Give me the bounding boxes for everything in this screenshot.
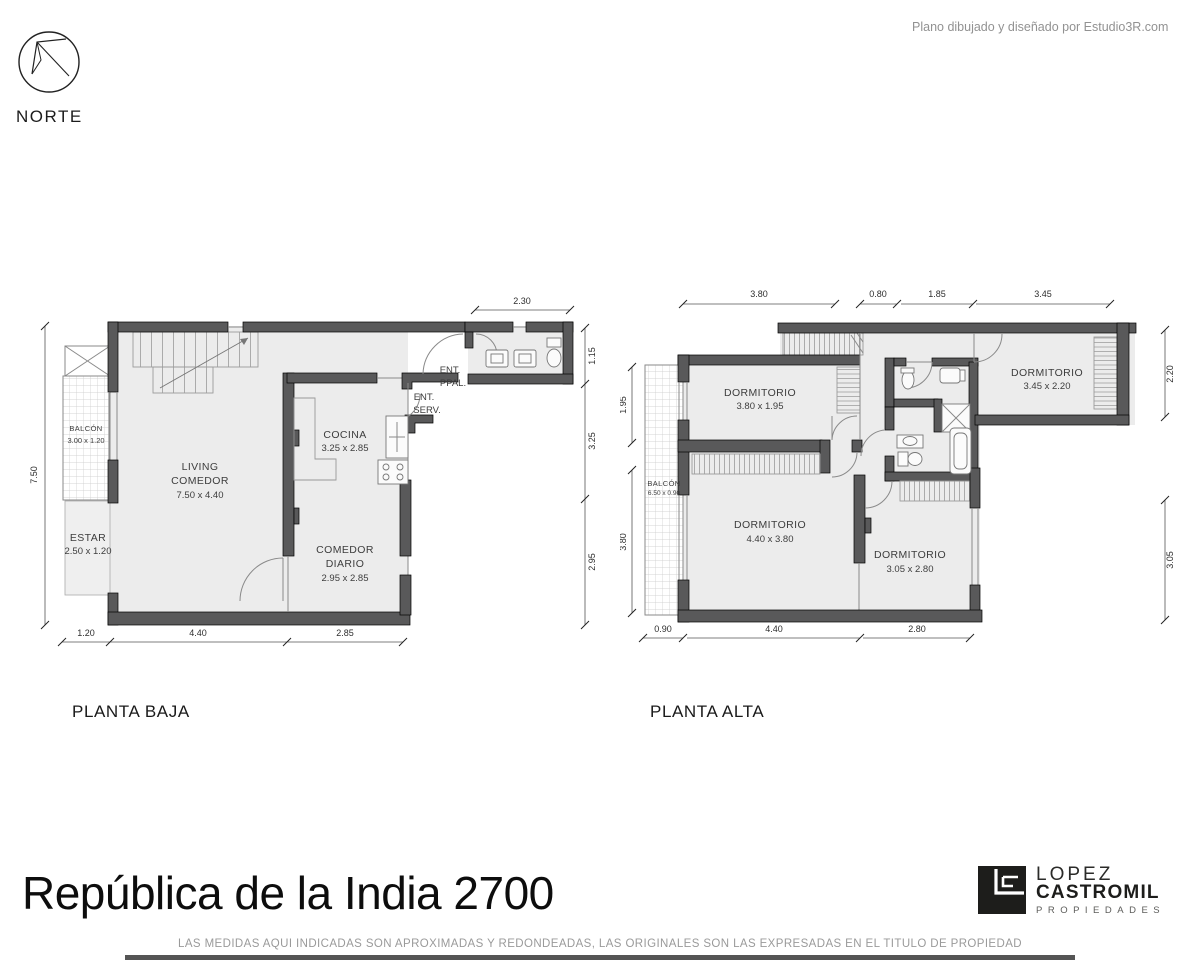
brand-text: LOPEZ CASTROMIL PROPIEDADES bbox=[1036, 866, 1165, 916]
north-compass-icon bbox=[14, 26, 86, 98]
stove-icon bbox=[378, 460, 408, 484]
room-dims-living: 7.50 x 4.40 bbox=[176, 490, 223, 501]
sink-icon bbox=[902, 371, 914, 389]
room-label-comedor-2: DIARIO bbox=[326, 558, 365, 570]
dim-pa-right1: 2.20 bbox=[1165, 365, 1175, 383]
brand-line3: PROPIEDADES bbox=[1036, 905, 1165, 916]
planta-baja-label: PLANTA BAJA bbox=[72, 702, 190, 722]
dim-pb-bottom2: 4.40 bbox=[189, 628, 207, 638]
dim-pa-bottom3: 2.80 bbox=[908, 624, 926, 634]
pa-closet-dorm4 bbox=[900, 481, 970, 501]
dim-pb-right3: 2.95 bbox=[587, 553, 597, 571]
room-label-dorm-este: DORMITORIO bbox=[1011, 367, 1083, 379]
brand-line2: CASTROMIL bbox=[1036, 883, 1165, 902]
toilet-icon bbox=[547, 338, 561, 347]
label-ent-ppal-2: PPAL. bbox=[440, 378, 466, 389]
room-label-estar: ESTAR bbox=[70, 532, 106, 544]
pa-closet-dorm2 bbox=[1094, 337, 1117, 409]
dim-pb-bottom1: 1.20 bbox=[77, 628, 95, 638]
lopez-castromil-logo: LOPEZ CASTROMIL PROPIEDADES bbox=[978, 866, 1165, 916]
dim-pa-top4: 3.45 bbox=[1034, 289, 1052, 299]
label-ent-serv-1: ENT. bbox=[414, 392, 435, 403]
room-dims-dorm-norte: 3.80 x 1.95 bbox=[736, 401, 783, 412]
pa-closet-dorm3 bbox=[692, 454, 820, 474]
room-label-dorm-norte: DORMITORIO bbox=[724, 387, 796, 399]
room-dims-dorm-sur: 3.05 x 2.80 bbox=[886, 564, 933, 575]
dim-pa-left2: 3.80 bbox=[620, 533, 628, 551]
page-title: República de la India 2700 bbox=[22, 866, 554, 920]
label-ent-serv-2: SERV. bbox=[413, 405, 440, 416]
planta-alta-label: PLANTA ALTA bbox=[650, 702, 764, 722]
dim-pa-bottom2: 4.40 bbox=[765, 624, 783, 634]
room-dims-cocina: 3.25 x 2.85 bbox=[321, 443, 368, 454]
dim-pb-right2: 3.25 bbox=[587, 432, 597, 450]
dim-pb-right1: 1.15 bbox=[587, 347, 597, 365]
floor-plan-sheet: NORTE Plano dibujado y diseñado por Estu… bbox=[0, 0, 1200, 960]
pa-closet-dorm1 bbox=[837, 367, 860, 413]
room-label-comedor-1: COMEDOR bbox=[316, 544, 374, 556]
disclaimer-text: LAS MEDIDAS AQUI INDICADAS SON APROXIMAD… bbox=[0, 938, 1200, 950]
label-ent-ppal-1: ENT. bbox=[440, 365, 461, 376]
dim-pa-left1: 1.95 bbox=[620, 396, 628, 414]
room-label-cocina: COCINA bbox=[323, 429, 366, 441]
room-label-living-1: LIVING bbox=[182, 461, 219, 473]
dim-pb-top: 2.30 bbox=[513, 296, 531, 306]
room-label-dorm-sur: DORMITORIO bbox=[874, 549, 946, 561]
north-indicator: NORTE bbox=[14, 26, 124, 127]
credit-text: Plano dibujado y diseñado por Estudio3R.… bbox=[912, 20, 1192, 34]
toilet-icon bbox=[898, 452, 908, 466]
toilet-icon bbox=[940, 368, 960, 383]
planta-baja-drawing: BALCÓN 3.00 x 1.20 ESTAR 2.50 x 1.20 LIV… bbox=[20, 280, 620, 660]
room-label-living-2: COMEDOR bbox=[171, 475, 229, 487]
room-label-balcon-pa: BALCÓN bbox=[647, 479, 680, 488]
room-dims-estar: 2.50 x 1.20 bbox=[64, 546, 111, 557]
dim-pa-bottom1: 0.90 bbox=[654, 624, 672, 634]
north-label: NORTE bbox=[16, 107, 124, 127]
room-dims-comedor: 2.95 x 2.85 bbox=[321, 573, 368, 584]
room-label-dorm-principal: DORMITORIO bbox=[734, 519, 806, 531]
logo-monogram-icon bbox=[978, 866, 1026, 914]
room-dims-balcon-pa: 6.50 x 0.90 bbox=[648, 490, 681, 497]
room-dims-balcon: 3.00 x 1.20 bbox=[67, 436, 104, 445]
dim-pa-top2: 0.80 bbox=[869, 289, 887, 299]
dim-pa-top3: 1.85 bbox=[928, 289, 946, 299]
planta-alta-drawing: BALCÓN 6.50 x 0.90 DORMITORIO 3.80 x 1.9… bbox=[620, 280, 1180, 660]
room-dims-dorm-principal: 4.40 x 3.80 bbox=[746, 534, 793, 545]
dim-pb-left: 7.50 bbox=[29, 466, 39, 484]
bottom-bar bbox=[125, 955, 1075, 960]
dim-pa-right2: 3.05 bbox=[1165, 551, 1175, 569]
dim-pa-top1: 3.80 bbox=[750, 289, 768, 299]
room-dims-dorm-este: 3.45 x 2.20 bbox=[1023, 381, 1070, 392]
pb-floors bbox=[63, 326, 568, 616]
dim-pb-bottom3: 2.85 bbox=[336, 628, 354, 638]
pa-stairs bbox=[783, 333, 863, 355]
brand-line1: LOPEZ bbox=[1036, 866, 1165, 883]
room-label-balcon: BALCÓN bbox=[69, 424, 102, 433]
